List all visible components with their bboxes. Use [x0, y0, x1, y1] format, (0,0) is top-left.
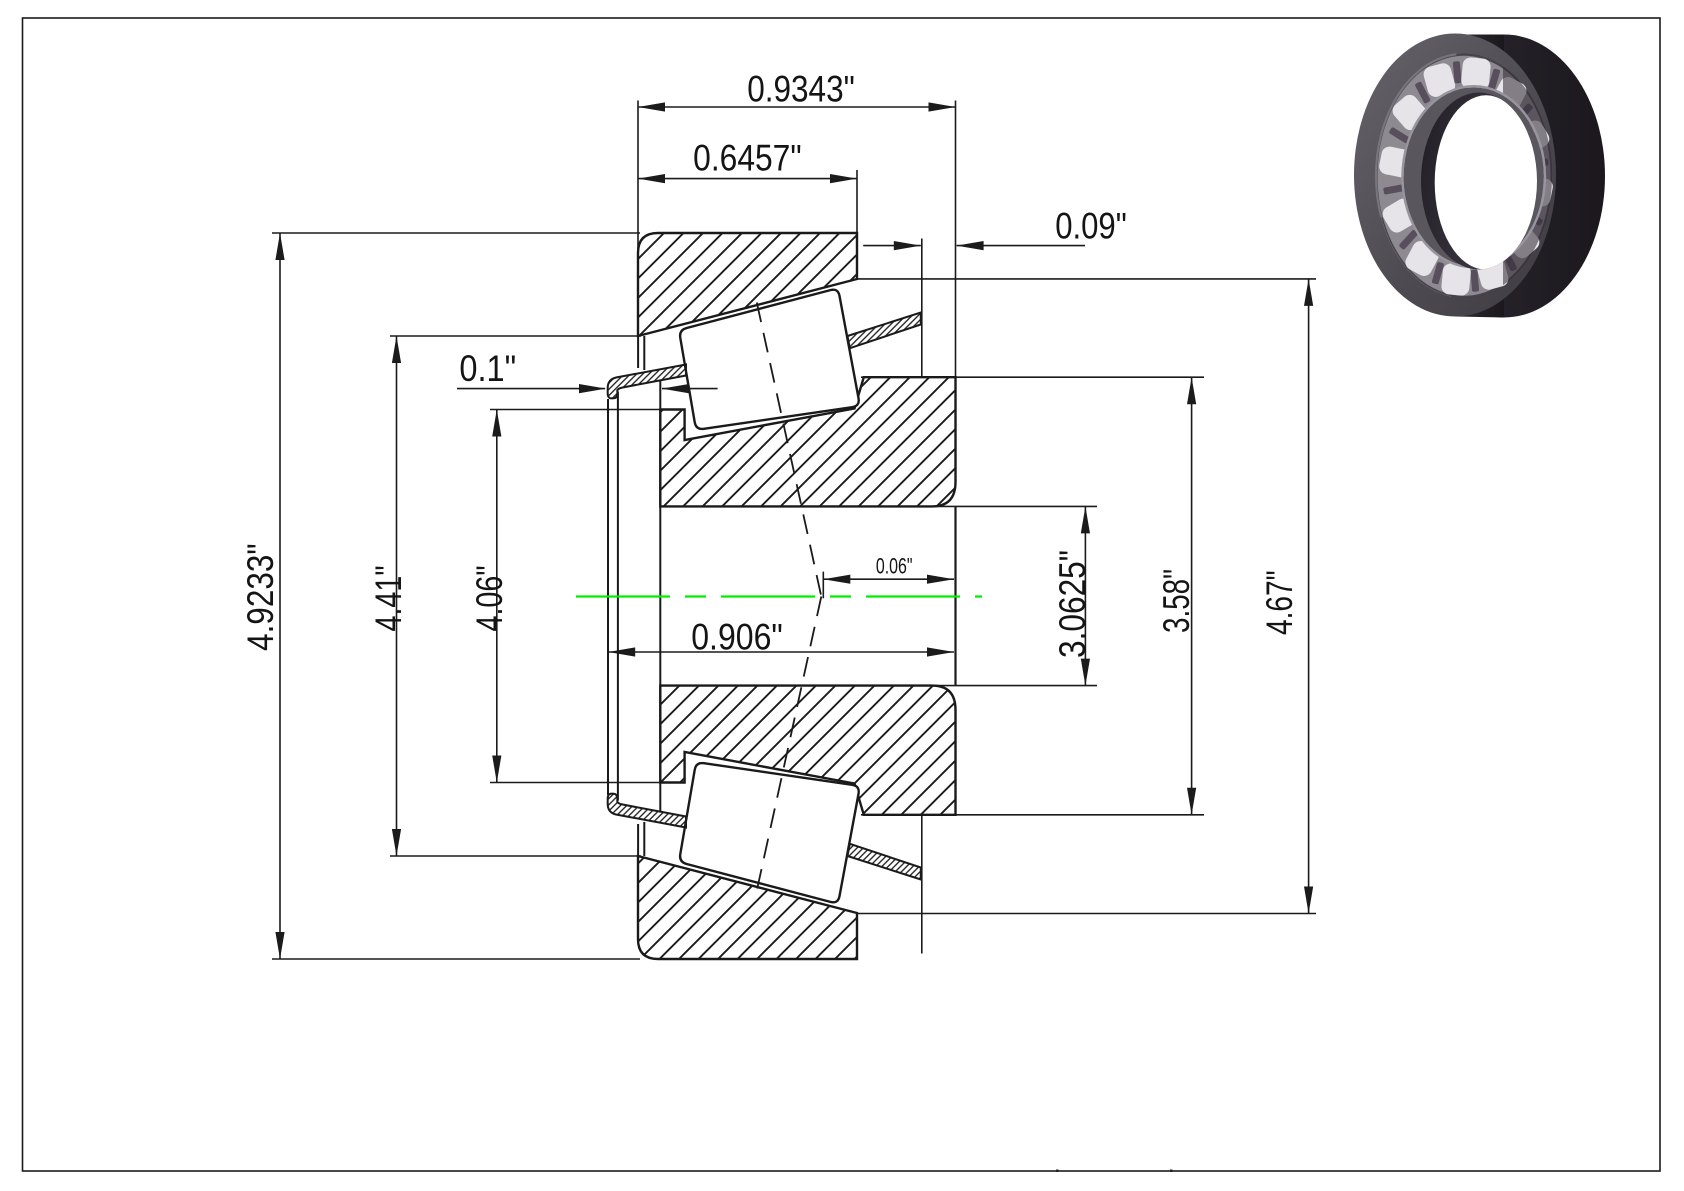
svg-text:4.67": 4.67": [1259, 570, 1300, 635]
svg-text:3.0625": 3.0625": [1052, 550, 1093, 658]
svg-text:0.09": 0.09": [1055, 206, 1127, 247]
svg-text:4.41": 4.41": [368, 566, 409, 632]
svg-text:3.58": 3.58": [1156, 569, 1197, 633]
svg-text:4.9233": 4.9233": [240, 543, 281, 651]
svg-text:4.06": 4.06": [469, 566, 510, 632]
svg-text:0.6457": 0.6457": [693, 138, 802, 179]
svg-text:0.1": 0.1": [459, 348, 516, 389]
svg-text:0.06": 0.06": [876, 553, 913, 578]
svg-text:0.9343": 0.9343": [747, 69, 855, 110]
svg-text:0.906": 0.906": [691, 617, 783, 658]
